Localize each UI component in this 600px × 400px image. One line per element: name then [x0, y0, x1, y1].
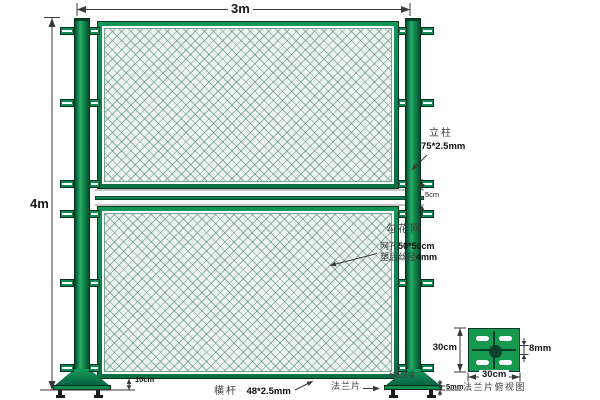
flange-label: 法兰片: [331, 382, 361, 392]
bolt-slot: [499, 360, 512, 365]
flange-plate-detail: [468, 328, 520, 372]
post-bracket: [421, 210, 434, 218]
ground-clearance-label: 10cm: [135, 376, 154, 384]
post-spec: 75*2.5mm: [421, 142, 465, 152]
support-label: 加固支撑: [389, 372, 415, 379]
height-dim-label: 4m: [30, 197, 49, 211]
post-bracket: [60, 279, 74, 287]
mesh-wire-row: 塑后丝径4mm: [380, 247, 437, 265]
anchor-bolt-head: [427, 395, 436, 398]
anchor-bolt-head: [389, 395, 398, 398]
post-bracket: [89, 99, 100, 107]
mesh-wire-value: 4mm: [416, 252, 437, 262]
plate-thickness-label: 5mm: [446, 383, 464, 391]
fence-diagram-canvas: 3m 4m 立柱 75*2.5mm 5cm 勾花网 网孔50*50cm 塑后丝径…: [0, 0, 600, 400]
post-bracket: [421, 27, 434, 35]
post-bracket: [398, 210, 407, 218]
detail-width-label: 30cm: [479, 370, 509, 380]
post-bracket: [421, 99, 434, 107]
post-bracket: [89, 180, 100, 188]
right-post: [405, 18, 421, 386]
post-bracket: [89, 279, 100, 287]
post-bracket: [398, 27, 407, 35]
post-bracket: [421, 180, 434, 188]
width-dim-label: 3m: [228, 2, 253, 16]
upper-mesh-panel: [97, 21, 399, 189]
post-bracket: [89, 210, 100, 218]
post-bracket: [60, 180, 74, 188]
panel-gap-band: [95, 189, 424, 206]
detail-height-label: 30cm: [431, 343, 457, 353]
anchor-bolt-head: [94, 395, 103, 398]
detail-caption: 法兰片俯视图: [463, 383, 526, 393]
lower-chainlink-mesh: [104, 213, 392, 372]
bolt-slot: [476, 360, 489, 365]
post-bracket: [60, 364, 74, 372]
upper-chainlink-mesh: [104, 28, 392, 182]
mesh-wire-label: 塑后丝径: [380, 252, 416, 262]
post-bracket: [398, 99, 407, 107]
post-bracket: [421, 364, 434, 372]
post-bracket: [60, 27, 74, 35]
center-hole: [489, 345, 502, 358]
rail-label: 横杆: [214, 386, 238, 397]
mesh-label: 勾花网: [386, 224, 422, 235]
rail-spec: 48*2.5mm: [246, 386, 290, 397]
left-post: [74, 18, 90, 386]
post-bracket: [60, 99, 74, 107]
post-label: 立柱: [429, 128, 453, 139]
post-bracket: [60, 210, 74, 218]
anchor-bolt-head: [56, 395, 65, 398]
post-bracket: [89, 364, 100, 372]
post-bracket: [398, 180, 407, 188]
detail-hole-label: 8mm: [529, 344, 551, 354]
gap-dim-label: 5cm: [425, 191, 439, 199]
post-bracket: [89, 27, 100, 35]
post-bracket: [398, 364, 407, 372]
bolt-slot: [499, 336, 512, 341]
middle-rail: [95, 196, 424, 200]
bolt-slot: [476, 336, 489, 341]
post-bracket: [421, 279, 434, 287]
lower-mesh-panel: [97, 206, 399, 379]
post-bracket: [398, 279, 407, 287]
rail-row: 横杆 48*2.5mm: [214, 381, 291, 399]
